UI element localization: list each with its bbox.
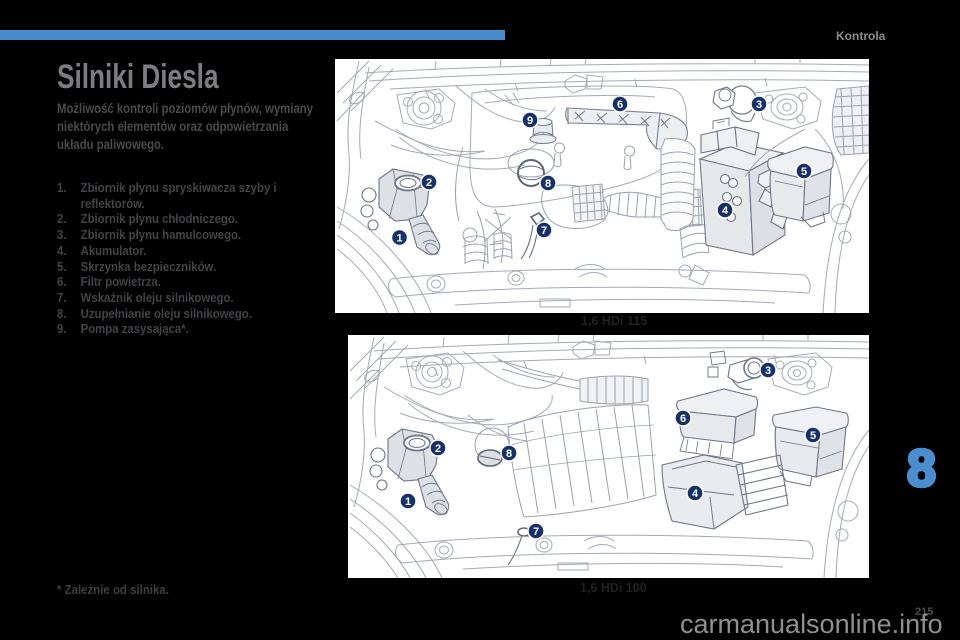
svg-text:5: 5 [801, 166, 807, 178]
svg-text:7: 7 [533, 526, 539, 538]
svg-text:5: 5 [810, 430, 816, 442]
svg-text:8: 8 [506, 448, 512, 460]
svg-text:4: 4 [722, 205, 729, 217]
svg-text:7: 7 [541, 225, 547, 237]
svg-text:4: 4 [692, 488, 699, 500]
svg-text:2: 2 [426, 177, 432, 189]
svg-text:1: 1 [396, 233, 402, 245]
svg-text:6: 6 [680, 413, 686, 425]
svg-text:6: 6 [617, 99, 623, 111]
svg-text:3: 3 [756, 99, 762, 111]
svg-text:9: 9 [527, 115, 533, 127]
svg-text:2: 2 [435, 443, 441, 455]
svg-text:1: 1 [405, 496, 411, 508]
svg-text:8: 8 [545, 178, 551, 190]
svg-text:3: 3 [765, 365, 771, 377]
